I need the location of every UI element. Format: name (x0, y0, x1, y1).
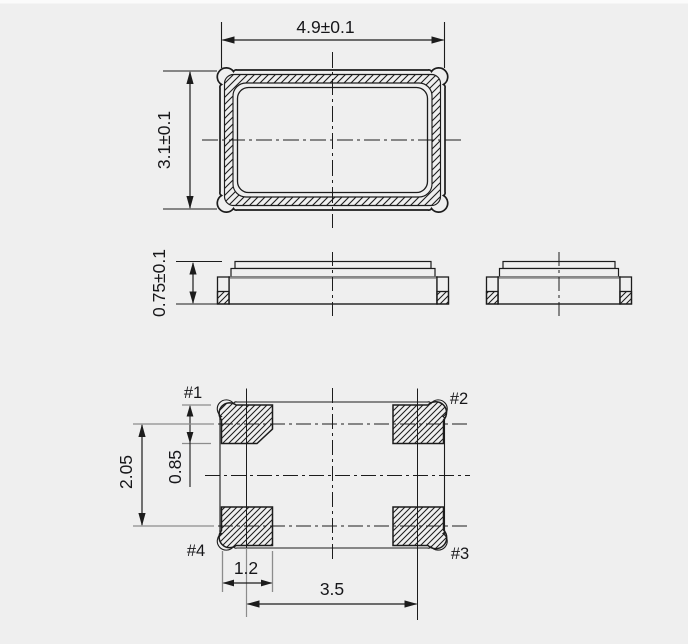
pad-2-label: #2 (450, 390, 468, 408)
dim-pad-width: 1.2 (223, 551, 273, 592)
dim-package-length-label: 3.1±0.1 (154, 111, 174, 169)
pad-3-label: #3 (451, 545, 469, 563)
arrowhead-up-icon (189, 262, 196, 275)
pad-1-label: #1 (184, 384, 202, 402)
arrowhead-right-icon (261, 580, 273, 587)
terminal-left-hatch (218, 292, 230, 305)
arrowhead-left-icon (247, 600, 260, 607)
arrowhead-up-icon (138, 424, 145, 437)
arrowhead-left-icon (223, 580, 235, 587)
dim-pad-column-pitch-label: 3.5 (320, 579, 344, 599)
arrowhead-down-icon (189, 292, 196, 305)
land-pattern-view: #1 #2 #3 #4 0.85 2.05 (116, 384, 470, 620)
pad-3 (393, 507, 447, 549)
page-top-edge (0, 0, 688, 4)
arrowhead-up-icon (186, 71, 193, 84)
dim-package-height-label: 0.75±0.1 (149, 249, 169, 317)
technical-drawing-page: 4.9±0.1 3.1±0.1 0.75±0.1 (0, 0, 688, 644)
dim-package-height: 0.75±0.1 (149, 249, 222, 317)
arrowhead-up-icon (187, 405, 194, 417)
dim-pad-width-label: 1.2 (234, 558, 258, 578)
pad-4 (219, 507, 272, 548)
terminal-right-hatch (437, 292, 449, 305)
dim-pad-height-label: 0.85 (165, 450, 185, 484)
arrowhead-down-icon (187, 432, 194, 444)
dim-pad-height: 0.85 (165, 405, 211, 487)
arrowhead-down-icon (186, 196, 193, 209)
arrowhead-down-icon (138, 513, 145, 526)
arrowhead-right-icon (432, 36, 445, 43)
arrowhead-right-icon (405, 600, 418, 607)
terminal-right-hatch (620, 292, 632, 305)
pad-4-label: #4 (187, 542, 205, 560)
pad-1 (219, 403, 272, 444)
pad-2 (393, 402, 447, 444)
front-side-view: 0.75±0.1 (149, 249, 449, 318)
terminal-left-hatch (487, 292, 499, 305)
dim-package-width-label: 4.9±0.1 (296, 17, 354, 37)
end-side-view (487, 252, 632, 318)
top-view: 4.9±0.1 3.1±0.1 (154, 17, 463, 228)
dim-pad-row-pitch-label: 2.05 (116, 455, 136, 489)
package-dimension-drawing: 4.9±0.1 3.1±0.1 0.75±0.1 (0, 0, 688, 644)
arrowhead-left-icon (222, 36, 235, 43)
